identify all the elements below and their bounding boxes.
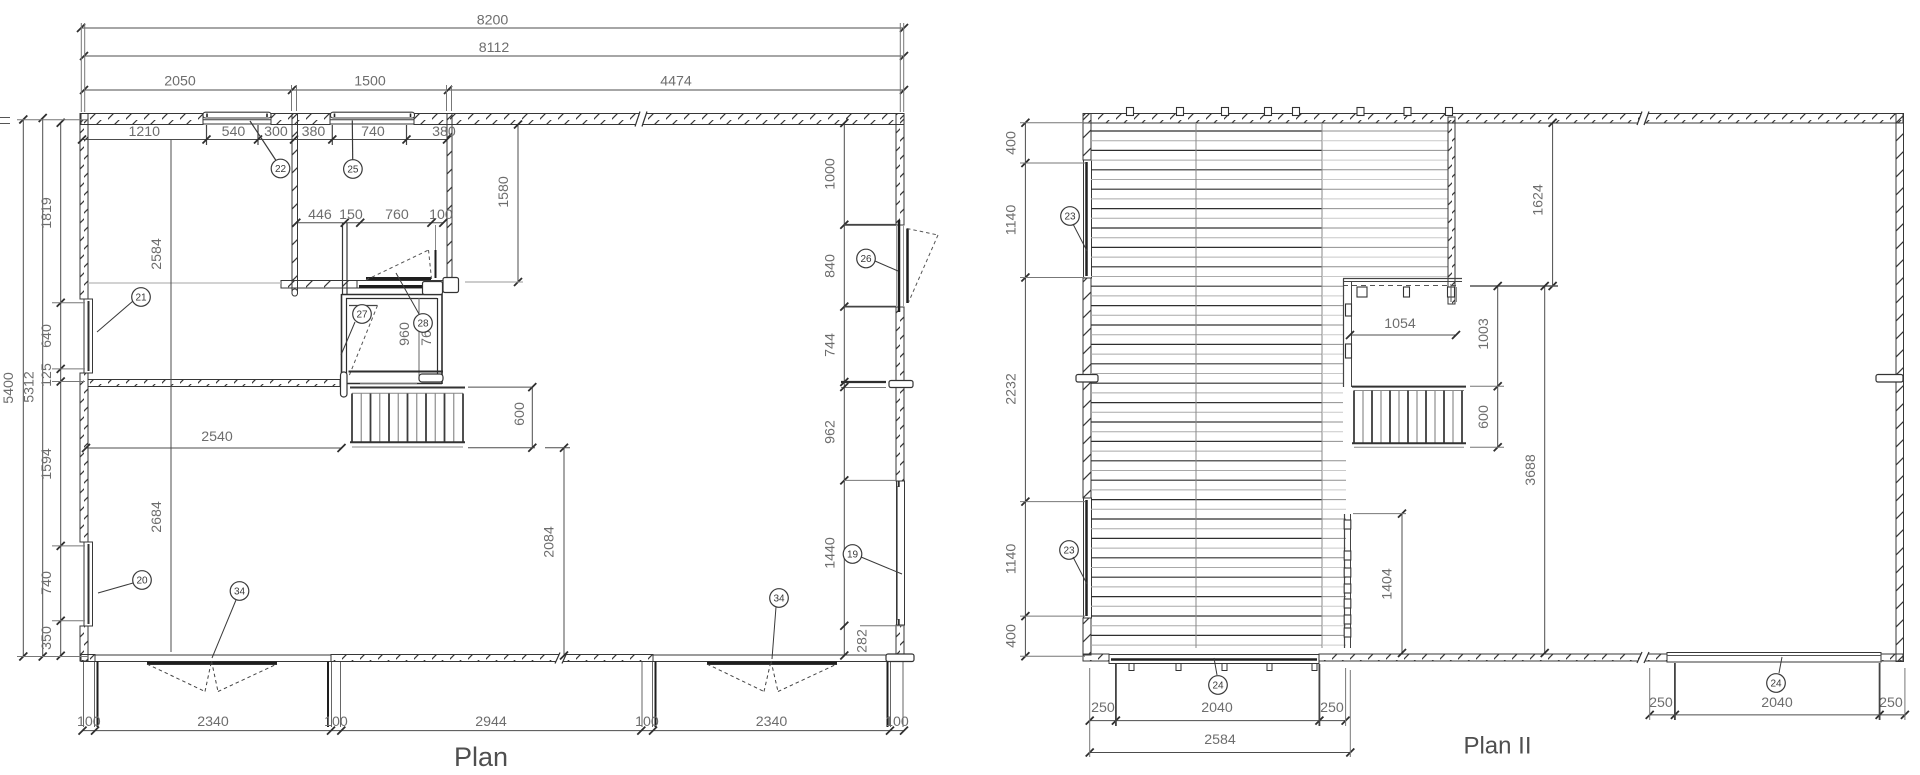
svg-text:1140: 1140	[1004, 544, 1020, 575]
svg-text:840: 840	[823, 254, 839, 278]
svg-text:744: 744	[823, 333, 839, 357]
svg-text:100: 100	[429, 207, 453, 223]
svg-text:1819: 1819	[39, 197, 55, 229]
svg-text:100: 100	[885, 714, 909, 730]
svg-text:Plan: Plan	[454, 742, 508, 772]
svg-text:22: 22	[275, 164, 287, 175]
svg-text:3688: 3688	[1523, 454, 1539, 486]
svg-text:600: 600	[1476, 405, 1492, 429]
svg-text:2540: 2540	[201, 429, 233, 445]
svg-text:1140: 1140	[1004, 205, 1020, 236]
svg-text:2340: 2340	[197, 714, 229, 730]
svg-text:2040: 2040	[1201, 700, 1233, 716]
svg-text:380: 380	[432, 124, 456, 140]
svg-text:100: 100	[77, 714, 101, 730]
svg-text:250: 250	[1320, 700, 1344, 716]
svg-text:34: 34	[773, 594, 785, 605]
svg-text:740: 740	[39, 571, 55, 595]
svg-text:1210: 1210	[129, 124, 161, 140]
svg-text:250: 250	[1091, 700, 1115, 716]
svg-text:4474: 4474	[660, 74, 692, 90]
svg-text:8112: 8112	[479, 40, 510, 56]
svg-text:2084: 2084	[542, 526, 558, 558]
svg-text:1580: 1580	[496, 176, 512, 208]
svg-text:27: 27	[356, 310, 368, 321]
svg-text:282: 282	[855, 629, 871, 653]
svg-text:25: 25	[347, 165, 359, 176]
svg-text:2944: 2944	[475, 714, 507, 730]
svg-text:1624: 1624	[1531, 184, 1547, 216]
svg-text:1594: 1594	[39, 448, 55, 480]
svg-text:5400: 5400	[1, 372, 17, 404]
svg-text:1404: 1404	[1380, 568, 1396, 600]
svg-text:2340: 2340	[756, 714, 788, 730]
svg-text:Plan II: Plan II	[1463, 732, 1531, 759]
svg-text:23: 23	[1063, 546, 1075, 557]
svg-text:125: 125	[39, 363, 55, 387]
svg-text:100: 100	[635, 714, 659, 730]
svg-text:8200: 8200	[477, 13, 509, 29]
svg-text:960: 960	[397, 322, 413, 346]
svg-text:350: 350	[39, 626, 55, 650]
svg-text:150: 150	[339, 207, 363, 223]
svg-text:2684: 2684	[149, 501, 165, 533]
svg-text:100: 100	[324, 714, 348, 730]
svg-text:24: 24	[1212, 681, 1224, 692]
svg-text:540: 540	[222, 124, 246, 140]
svg-text:24: 24	[1770, 679, 1782, 690]
svg-text:2232: 2232	[1004, 373, 1020, 405]
svg-text:2584: 2584	[149, 238, 165, 270]
svg-text:1003: 1003	[1476, 318, 1492, 350]
svg-text:2040: 2040	[1761, 695, 1793, 711]
svg-text:446: 446	[308, 207, 332, 223]
svg-text:1440: 1440	[823, 537, 839, 569]
svg-text:26: 26	[860, 254, 872, 265]
svg-text:1500: 1500	[354, 74, 386, 90]
svg-text:19: 19	[847, 550, 859, 561]
svg-text:2050: 2050	[164, 74, 196, 90]
svg-text:250: 250	[1649, 695, 1673, 711]
svg-text:1000: 1000	[823, 158, 839, 190]
svg-text:400: 400	[1004, 624, 1020, 648]
svg-text:28: 28	[417, 319, 429, 330]
svg-text:962: 962	[823, 420, 839, 444]
svg-text:600: 600	[512, 402, 528, 426]
svg-text:34: 34	[234, 587, 246, 598]
svg-text:2584: 2584	[1204, 732, 1236, 748]
svg-text:20: 20	[136, 576, 148, 587]
svg-text:380: 380	[302, 124, 326, 140]
svg-text:640: 640	[39, 324, 55, 348]
svg-text:250: 250	[1879, 695, 1903, 711]
svg-text:760: 760	[385, 207, 409, 223]
svg-text:5312: 5312	[22, 371, 38, 403]
svg-text:23: 23	[1064, 212, 1076, 223]
svg-text:740: 740	[361, 124, 385, 140]
svg-text:1054: 1054	[1384, 316, 1416, 332]
svg-text:21: 21	[135, 293, 147, 304]
svg-text:300: 300	[264, 124, 288, 140]
svg-text:400: 400	[1004, 131, 1020, 155]
